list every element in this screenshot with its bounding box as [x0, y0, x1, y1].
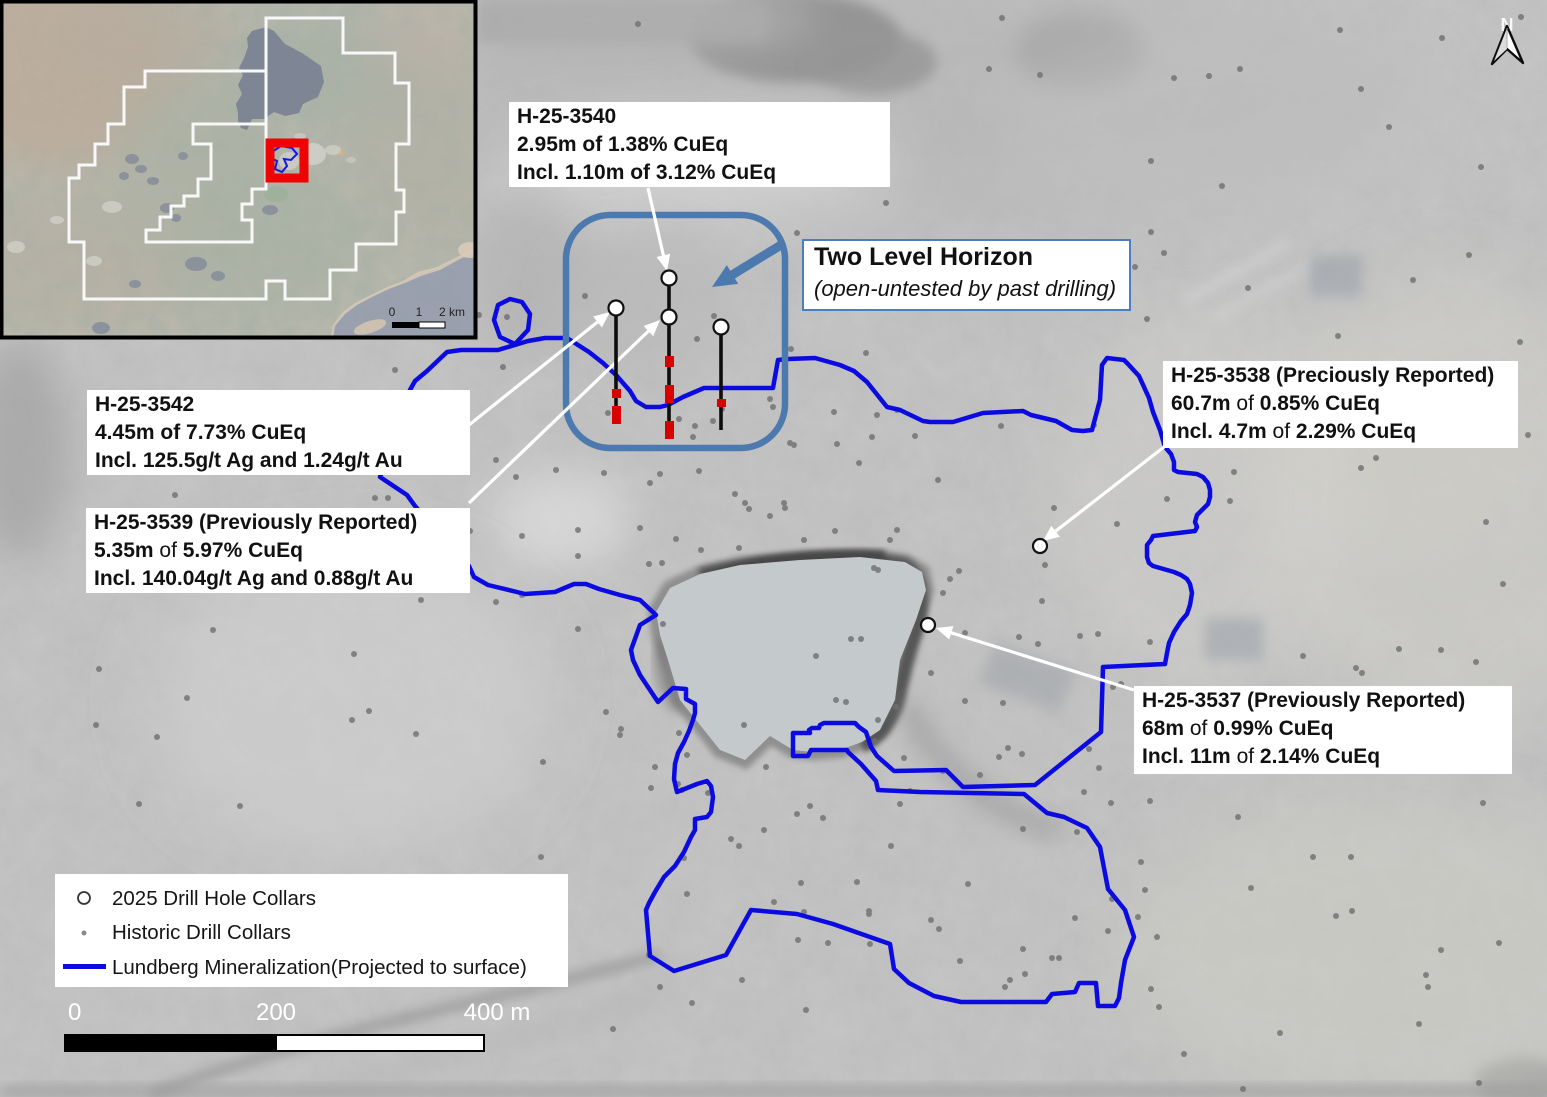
svg-text:1: 1	[416, 305, 423, 319]
svg-text:0: 0	[389, 305, 396, 319]
svg-text:2 km: 2 km	[439, 305, 465, 319]
svg-text:200: 200	[256, 999, 296, 1026]
svg-text:400 m: 400 m	[464, 999, 531, 1026]
svg-text:0: 0	[68, 999, 81, 1026]
